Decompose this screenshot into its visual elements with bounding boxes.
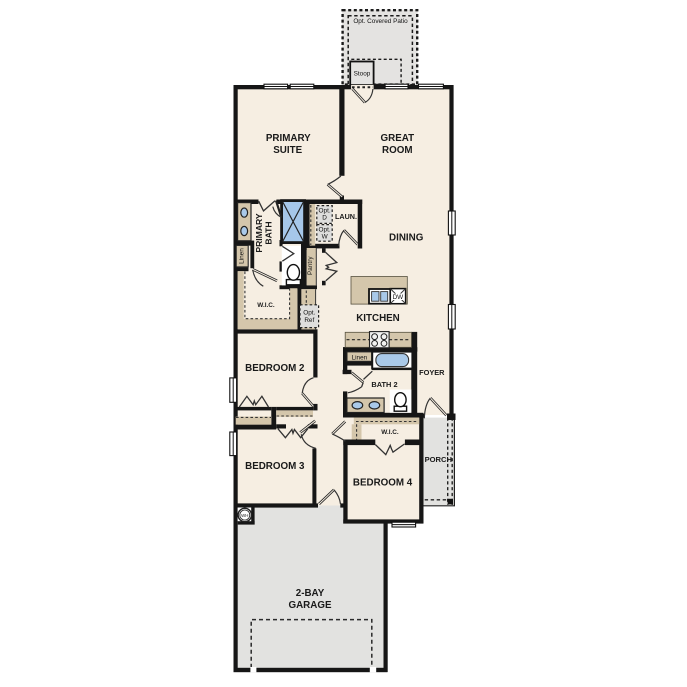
svg-text:W.I.C.: W.I.C. [381, 429, 399, 436]
svg-text:FOYER: FOYER [419, 368, 445, 377]
svg-text:2-BAY: 2-BAY [296, 588, 325, 599]
svg-text:PRIMARY: PRIMARY [266, 133, 311, 144]
svg-text:DINING: DINING [389, 233, 424, 244]
svg-text:GARAGE: GARAGE [288, 600, 331, 611]
svg-text:BATH: BATH [264, 221, 274, 244]
svg-text:PRIMARY: PRIMARY [254, 213, 264, 253]
svg-text:Linen: Linen [238, 248, 245, 264]
svg-text:Opt. Covered Patio: Opt. Covered Patio [353, 18, 408, 25]
svg-text:Ref: Ref [304, 317, 314, 324]
svg-text:SUITE: SUITE [273, 145, 302, 156]
svg-text:D: D [322, 215, 327, 222]
svg-text:PORCH: PORCH [425, 455, 452, 464]
svg-text:Linen: Linen [352, 354, 368, 361]
svg-text:Opt.: Opt. [319, 207, 331, 214]
svg-text:BEDROOM 4: BEDROOM 4 [353, 477, 413, 488]
svg-text:Opt.: Opt. [319, 226, 331, 233]
svg-text:WH: WH [241, 513, 248, 518]
svg-text:BEDROOM 3: BEDROOM 3 [245, 461, 305, 472]
svg-text:Pantry: Pantry [307, 256, 314, 275]
svg-text:DW: DW [393, 294, 405, 301]
svg-text:LAUN.: LAUN. [335, 212, 357, 221]
svg-text:W: W [322, 234, 329, 241]
svg-text:W.I.C.: W.I.C. [257, 302, 275, 309]
svg-text:GREAT: GREAT [381, 133, 415, 144]
svg-text:KITCHEN: KITCHEN [356, 313, 400, 324]
svg-text:BATH 2: BATH 2 [371, 380, 397, 389]
svg-text:BEDROOM 2: BEDROOM 2 [245, 363, 305, 374]
svg-text:Opt.: Opt. [303, 309, 315, 316]
svg-text:ROOM: ROOM [382, 145, 412, 156]
svg-text:Stoop: Stoop [354, 71, 371, 78]
